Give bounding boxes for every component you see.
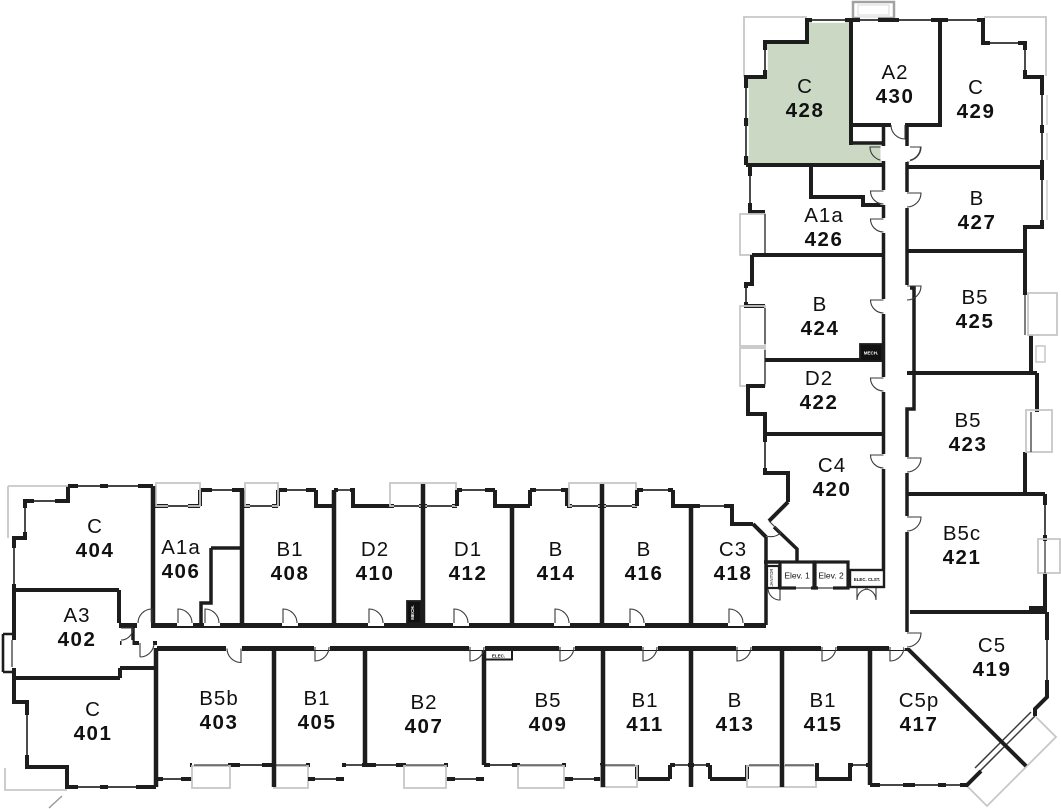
svg-text:C5p: C5p [899, 689, 940, 712]
svg-text:B1: B1 [631, 689, 658, 712]
svg-text:414: 414 [537, 562, 576, 585]
svg-text:B5c: B5c [943, 522, 981, 545]
svg-text:B1: B1 [809, 689, 836, 712]
svg-text:403: 403 [200, 711, 239, 734]
svg-text:412: 412 [449, 562, 488, 585]
svg-text:415: 415 [804, 713, 843, 736]
svg-text:404: 404 [76, 539, 115, 562]
svg-text:416: 416 [625, 562, 664, 585]
svg-text:410: 410 [356, 562, 395, 585]
svg-text:407: 407 [405, 715, 444, 738]
svg-text:B: B [970, 187, 985, 210]
svg-text:Elev. 1: Elev. 1 [784, 571, 810, 581]
svg-text:D1: D1 [454, 538, 482, 561]
svg-text:408: 408 [271, 562, 310, 585]
svg-text:B5: B5 [954, 409, 981, 432]
svg-text:401: 401 [74, 722, 113, 745]
svg-text:422: 422 [800, 391, 839, 414]
svg-text:ELEC. CLST.: ELEC. CLST. [854, 577, 880, 582]
svg-text:B2: B2 [410, 691, 437, 714]
svg-text:A3: A3 [63, 604, 90, 627]
svg-text:JANITOR: JANITOR [769, 569, 774, 587]
svg-text:426: 426 [805, 228, 844, 251]
svg-text:Elev. 2: Elev. 2 [818, 571, 844, 581]
svg-text:MECH.: MECH. [410, 605, 415, 620]
svg-text:C5: C5 [978, 634, 1006, 657]
svg-text:418: 418 [714, 562, 753, 585]
svg-text:D2: D2 [361, 538, 389, 561]
svg-text:D2: D2 [805, 367, 833, 390]
svg-text:B: B [813, 293, 828, 316]
svg-text:C3: C3 [719, 538, 747, 561]
svg-text:417: 417 [900, 713, 939, 736]
svg-text:C: C [87, 515, 103, 538]
svg-text:A2: A2 [881, 61, 908, 84]
svg-text:B5: B5 [961, 286, 988, 309]
svg-text:MECH.: MECH. [864, 351, 879, 356]
svg-text:A1a: A1a [161, 536, 200, 559]
svg-text:C: C [85, 698, 101, 721]
svg-text:419: 419 [973, 658, 1012, 681]
svg-text:429: 429 [957, 100, 996, 123]
svg-text:411: 411 [626, 713, 664, 736]
svg-text:C: C [797, 75, 813, 98]
svg-text:C4: C4 [818, 454, 846, 477]
svg-text:B5b: B5b [199, 687, 238, 710]
svg-text:B: B [549, 538, 564, 561]
svg-text:413: 413 [716, 713, 755, 736]
svg-text:B5: B5 [534, 689, 561, 712]
svg-text:406: 406 [162, 560, 201, 583]
svg-text:ELEC.: ELEC. [492, 654, 505, 659]
svg-text:C: C [968, 76, 984, 99]
svg-text:A1a: A1a [804, 204, 843, 227]
svg-text:430: 430 [876, 85, 915, 108]
svg-text:421: 421 [943, 546, 982, 569]
svg-text:420: 420 [813, 478, 852, 501]
svg-text:B1: B1 [303, 687, 330, 710]
svg-text:424: 424 [801, 317, 840, 340]
svg-text:B: B [637, 538, 652, 561]
svg-text:428: 428 [786, 99, 825, 122]
svg-text:409: 409 [529, 713, 568, 736]
svg-text:405: 405 [298, 711, 337, 734]
svg-text:427: 427 [958, 211, 997, 234]
svg-text:423: 423 [949, 433, 988, 456]
svg-text:425: 425 [956, 310, 995, 333]
svg-text:B1: B1 [276, 538, 303, 561]
svg-text:B: B [728, 689, 743, 712]
svg-text:402: 402 [58, 628, 97, 651]
